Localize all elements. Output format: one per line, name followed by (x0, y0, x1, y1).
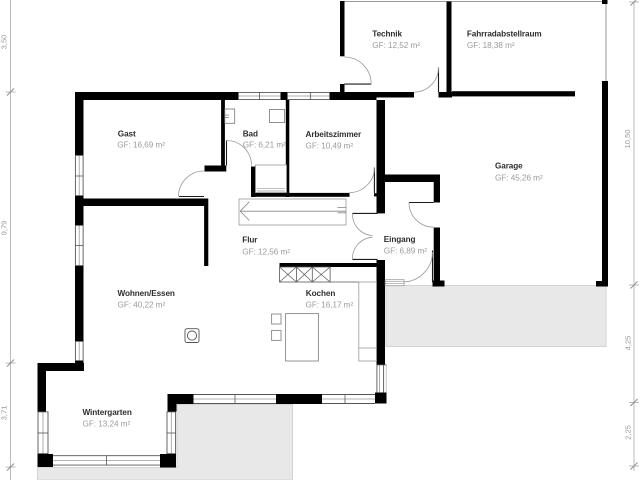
svg-text:GF: 16,69 m²: GF: 16,69 m² (117, 141, 165, 150)
svg-text:3,71: 3,71 (0, 406, 9, 421)
svg-text:Flur: Flur (242, 236, 258, 245)
svg-text:GF: 10,49 m²: GF: 10,49 m² (306, 141, 354, 150)
svg-text:GF: 45,26 m²: GF: 45,26 m² (495, 173, 543, 182)
svg-text:4,25: 4,25 (624, 336, 633, 351)
svg-text:GF: 16,17 m²: GF: 16,17 m² (306, 300, 354, 309)
svg-text:Garage: Garage (495, 162, 523, 171)
svg-text:Technik: Technik (372, 29, 402, 38)
svg-text:Kochen: Kochen (306, 289, 336, 298)
svg-text:Eingang: Eingang (384, 235, 416, 244)
svg-text:Gast: Gast (118, 129, 136, 138)
svg-text:10,50: 10,50 (623, 129, 632, 148)
svg-text:Wintergarten: Wintergarten (83, 408, 132, 417)
svg-text:Arbeitszimmer: Arbeitszimmer (306, 130, 362, 139)
svg-text:GF: 6,21 m²: GF: 6,21 m² (243, 141, 286, 150)
svg-text:GF: 13,24 m²: GF: 13,24 m² (83, 420, 131, 429)
svg-text:Bad: Bad (243, 129, 258, 138)
svg-text:Fahrradabstellraum: Fahrradabstellraum (467, 29, 542, 38)
svg-text:GF: 18,38 m²: GF: 18,38 m² (467, 41, 515, 50)
svg-text:GF: 12,56 m²: GF: 12,56 m² (242, 247, 290, 256)
svg-text:GF: 40,22 m²: GF: 40,22 m² (118, 300, 166, 309)
svg-text:2,25: 2,25 (624, 425, 633, 440)
svg-text:GF: 12,52 m²: GF: 12,52 m² (372, 41, 420, 50)
svg-text:Wohnen/Essen: Wohnen/Essen (118, 289, 175, 298)
svg-text:3,50: 3,50 (0, 35, 9, 50)
svg-text:9,79: 9,79 (0, 221, 9, 236)
svg-text:GF: 6,89 m²: GF: 6,89 m² (384, 246, 427, 255)
